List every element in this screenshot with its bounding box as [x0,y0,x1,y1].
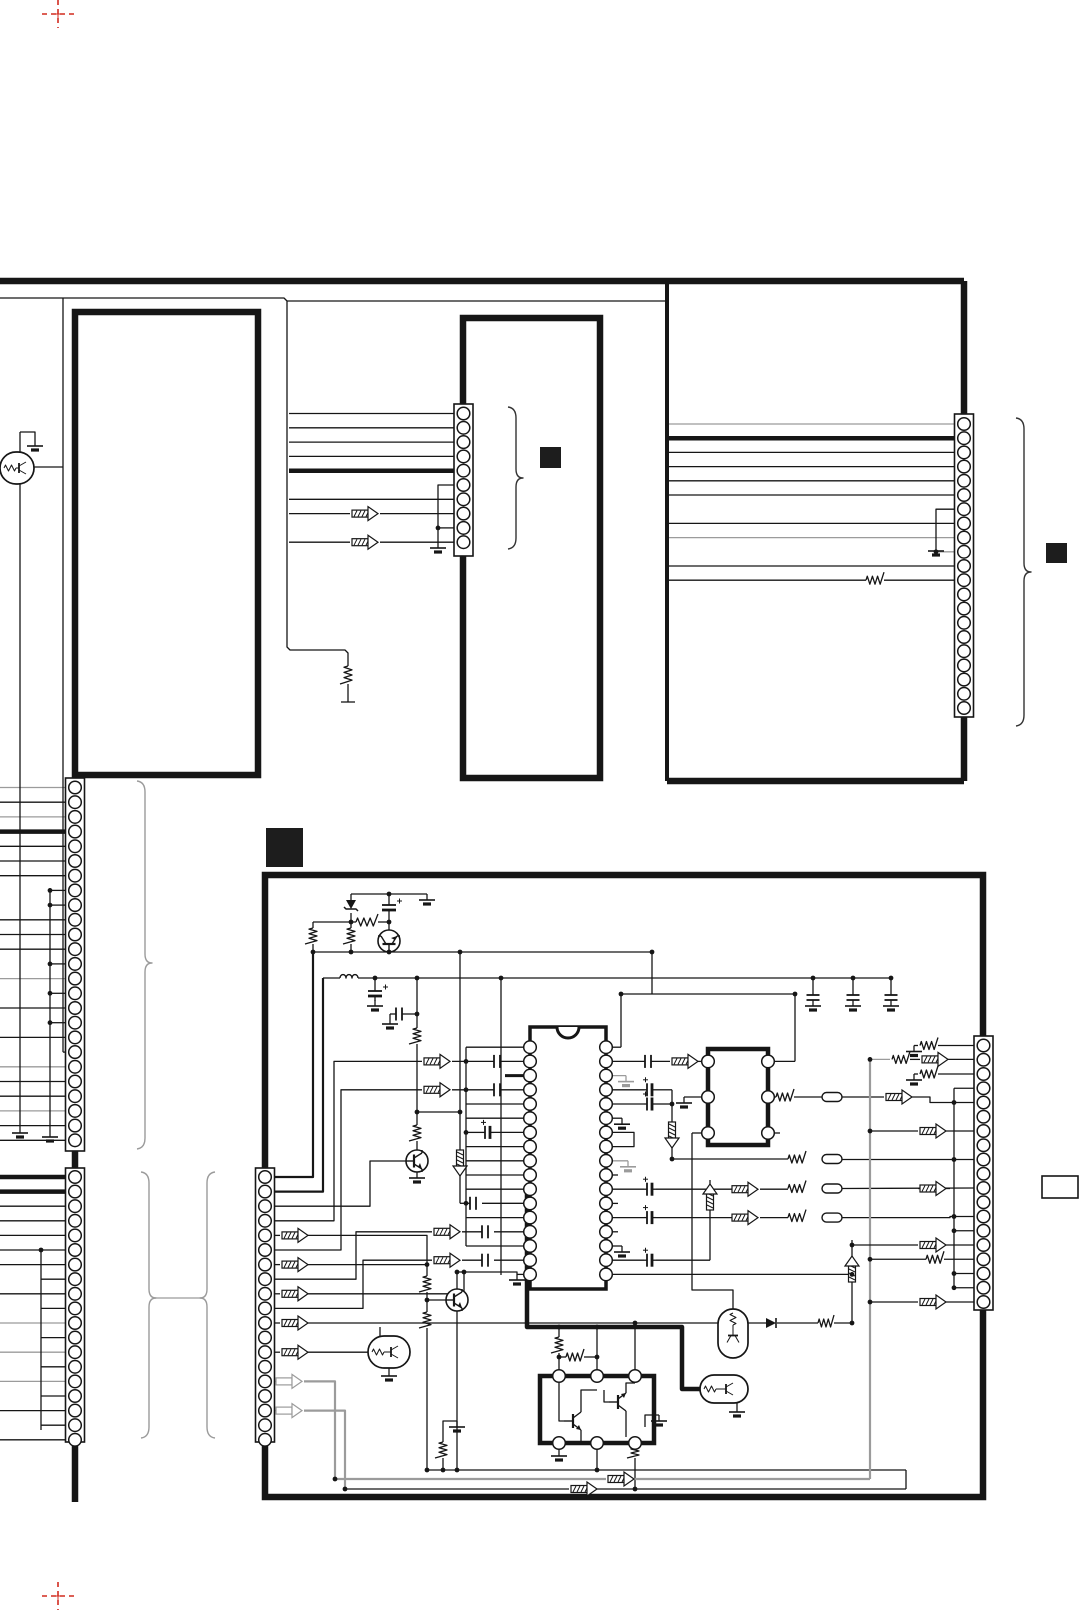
connector-pin [69,1031,82,1044]
signal-flow-arrow-icon [276,1378,292,1385]
signal-flow-arrow-icon [748,1211,758,1225]
module-pin [629,1370,642,1383]
ic-pin [524,1211,537,1224]
signal-flow-arrow-icon [298,1228,308,1242]
junction-dot [48,1020,53,1025]
connector-pin [259,1288,272,1301]
connector-pin [958,688,971,701]
junction-dot [670,1102,675,1107]
connector-pin [457,436,470,449]
signal-flow-arrow-icon [282,1287,308,1301]
signal-flow-arrow-icon [902,1090,912,1104]
connector-pin [977,1267,990,1280]
connector-pin [259,1331,272,1344]
junction-dot [850,1243,855,1248]
module-pin [553,1370,566,1383]
junction-dot [343,1487,348,1492]
ic-pin [600,1155,613,1168]
transistor-symbol [573,1412,581,1418]
connector-pin [69,1375,82,1388]
ic-pin [524,1055,537,1068]
connector-pin [69,1046,82,1059]
ic-pin [600,1254,613,1267]
connector-pin [259,1346,272,1359]
connector-pin [259,1317,272,1330]
module-pin [762,1127,775,1140]
signal-flow-arrow-icon [276,1407,292,1414]
signal-flow-arrow-icon [282,1258,308,1272]
connector-pin [958,475,971,488]
connector-pin [958,446,971,459]
junction-dot [595,1468,600,1473]
resistor-symbol [776,1089,794,1101]
signal-flow-arrow-icon [624,1472,634,1486]
resistor-symbol [818,1315,834,1327]
connector-pin [259,1185,272,1198]
connector-pin [457,407,470,420]
signal-flow-arrow-icon [276,1404,302,1418]
junction-dot [462,1270,467,1275]
transistor-symbol [406,1150,428,1172]
resistor-symbol [892,1051,910,1063]
signal-flow-arrow-icon [936,1124,946,1138]
connector-pin [457,422,470,435]
connector-pin [958,702,971,715]
ic-pin [524,1183,537,1196]
connector-pin [69,825,82,838]
connector-pin [69,928,82,941]
signal-flow-arrow-icon [352,535,378,549]
junction-dot [311,950,316,955]
wire [275,978,324,1192]
signal-flow-arrow-icon [440,1083,450,1097]
ic-pin [600,1084,613,1097]
signal-flow-arrow-icon [292,1374,302,1388]
transistor-array-symbol [540,1376,654,1443]
connector-pin [977,1153,990,1166]
connector-pin [958,503,971,516]
connector-pin [259,1244,272,1257]
junction-dot [464,1130,469,1135]
resistor-symbol [356,914,378,926]
junction-dot [952,1157,957,1162]
connector-pin [69,1171,82,1184]
connector-pin [259,1215,272,1228]
signal-flow-arrow-icon [434,1225,460,1239]
resistor-symbol [566,1349,584,1361]
signal-flow-arrow-icon [845,1256,859,1282]
connector-pin [977,1182,990,1195]
connector-pin [977,1039,990,1052]
signal-flow-arrow-icon [298,1258,308,1272]
junction-dot [441,1468,446,1473]
junction-dot [349,920,354,925]
signal-flow-arrow-icon [886,1090,912,1104]
signal-flow-arrow-icon [453,1150,467,1176]
junction-dot [952,1285,957,1290]
junction-dot [952,1228,957,1233]
connector-pin [958,546,971,559]
connector-pin [958,489,971,502]
wire [275,1061,423,1220]
junction-dot [425,1468,430,1473]
resistor-symbol [305,928,317,944]
connector-pin [69,914,82,927]
signal-flow-arrow-icon [298,1345,308,1359]
cable-bundle-brace [137,781,152,1149]
junction-dot [952,1100,957,1105]
signal-flow-arrow-icon [298,1316,308,1330]
connector-pin [958,531,971,544]
wire [936,509,956,545]
connector-pin [977,1167,990,1180]
connector-pin [69,1090,82,1103]
connector-pin [69,1215,82,1228]
ic-pin [524,1041,537,1054]
signal-flow-arrow-icon [450,1253,460,1267]
wire [912,1097,974,1103]
signal-flow-arrow-icon [732,1182,758,1196]
ic-symbol [530,1027,606,1289]
signal-flow-arrow-icon [920,1295,946,1309]
ic-pin [524,1112,537,1125]
resistor-symbol [920,1066,938,1078]
connector-pin [259,1375,272,1388]
resistor-symbol [419,1276,431,1292]
ic-pin [600,1055,613,1068]
ic-pin [524,1084,537,1097]
connector-pin [977,1196,990,1209]
ic-pin [524,1098,537,1111]
junction-dot [793,992,798,997]
connector-pin [457,479,470,492]
signal-flow-arrow-icon [688,1054,698,1068]
junction-dot [595,1355,600,1360]
connector-pin [69,1016,82,1029]
connector-pin [259,1434,272,1447]
connector-pin [958,588,971,601]
wire [304,1411,345,1489]
ferrite-bead-symbol [822,1213,842,1222]
wire [304,1381,335,1479]
connector-pin [958,560,971,573]
ic-pin [524,1197,537,1210]
ic-pin [524,1169,537,1182]
junction-dot [373,976,378,981]
connector-pin [457,522,470,535]
connector-pin [69,855,82,868]
junction-dot [464,1087,469,1092]
circuit-block-outline [75,312,258,775]
transistor-symbol [446,1289,468,1311]
junction-dot [868,1257,873,1262]
signal-flow-arrow-icon [424,1083,450,1097]
connector-pin [958,517,971,530]
junction-dot [595,1325,600,1330]
connector-pin [958,659,971,672]
schematic-canvas [0,0,1079,1610]
resistor-symbol [866,572,884,584]
wire [275,1161,407,1206]
signal-flow-arrow-icon [920,1124,946,1138]
junction-dot [436,526,441,531]
wire [581,1390,597,1412]
junction-dot [633,1321,638,1326]
connector-pin [457,507,470,520]
ferrite-bead-symbol [822,1093,842,1102]
ic-symbol [557,1027,579,1038]
junction-dot [48,962,53,967]
resistor-symbol [788,1151,806,1163]
resistor-symbol [409,1125,421,1141]
connector-pin [69,899,82,912]
transistor-symbol [618,1405,626,1411]
signal-flow-arrow-icon [672,1054,698,1068]
junction-dot [868,1129,873,1134]
wire [20,432,35,440]
connector-pin [977,1139,990,1152]
junction-dot [851,976,856,981]
signal-flow-arrow-icon [922,1052,948,1066]
signal-flow-arrow-icon [298,1287,308,1301]
ic-pin [600,1041,613,1054]
ferrite-bead-symbol [822,1155,842,1164]
connector-pin [958,432,971,445]
signal-flow-arrow-icon [936,1295,946,1309]
signal-flow-arrow-icon [368,535,378,549]
ic-pin [524,1069,537,1082]
junction-dot [458,1110,463,1115]
ic-pin [524,1240,537,1253]
junction-dot [387,950,392,955]
ic-pin [600,1112,613,1125]
signal-flow-arrow-icon [352,507,378,521]
junction-dot [670,1157,675,1162]
cable-bundle-brace [200,1172,215,1438]
wire [626,1383,635,1393]
signal-flow-arrow-icon [920,1238,946,1252]
junction-dot [850,1321,855,1326]
signal-flow-arrow-icon [276,1374,302,1388]
resistor-symbol [419,1312,431,1328]
connector-pin [69,1331,82,1344]
connector-pin [69,1404,82,1417]
signal-flow-arrow-icon [434,1253,460,1267]
connector-pin [958,631,971,644]
module-pin [762,1055,775,1068]
connector-pin [69,796,82,809]
cable-bundle-brace [1016,418,1031,726]
ic-pin [600,1183,613,1196]
cable-bundle-brace [141,1172,156,1438]
signal-flow-arrow-icon [665,1138,679,1148]
junction-dot [39,1248,44,1253]
connector-pin [259,1229,272,1242]
connector-pin [69,1419,82,1432]
connector-pin [69,1390,82,1403]
junction-dot [387,920,392,925]
module-pin [553,1437,566,1450]
black-square-marker [1046,543,1067,563]
ic-pin [600,1197,613,1210]
connector-pin [69,943,82,956]
junction-dot [499,976,504,981]
signal-flow-arrow-icon [440,1054,450,1068]
junction-dot [425,1298,430,1303]
wire [275,952,314,1177]
connector-pin [259,1419,272,1432]
module-pin [762,1091,775,1104]
junction-dot [48,991,53,996]
connector-pin [457,450,470,463]
signal-flow-arrow-icon [282,1345,308,1359]
wire [308,1272,464,1294]
connector-pin [69,1346,82,1359]
connector-pin [977,1210,990,1223]
connector-pin [69,869,82,882]
wire [559,1383,564,1421]
signal-flow-arrow-icon [450,1225,460,1239]
connector-pin [958,673,971,686]
junction-dot [464,1059,469,1064]
module-pin [702,1055,715,1068]
junction-dot [952,1271,957,1276]
module-pin [591,1437,604,1450]
connector-pin [69,1361,82,1374]
connector-pin [69,1244,82,1257]
connector-pin [958,617,971,630]
connector-pin [259,1361,272,1374]
junction-dot [455,1270,460,1275]
connector-pin [69,1075,82,1088]
connector-pin [259,1171,272,1184]
black-square-marker [266,828,303,867]
connector-pin [457,464,470,477]
module-pin [629,1437,642,1450]
junction-dot [48,888,53,893]
connector-pin [977,1110,990,1123]
wire [0,298,348,666]
connector-pin [259,1404,272,1417]
connector-pin [69,811,82,824]
junction-dot [934,549,939,554]
connector-pin [977,1125,990,1138]
junction-dot [557,1325,562,1330]
connector-pin [977,1096,990,1109]
junction-dot [464,1201,469,1206]
ic-pin [600,1069,613,1082]
signal-flow-arrow-icon [748,1182,758,1196]
connector-pin [69,840,82,853]
signal-flow-arrow-icon [282,1316,308,1330]
junction-dot [425,1262,430,1267]
signal-flow-arrow-icon [292,1404,302,1418]
junction-dot [868,1057,873,1062]
connector-pin [69,1119,82,1132]
junction-dot [455,1468,460,1473]
connector-pin [977,1296,990,1309]
connector-pin [69,1105,82,1118]
connector-pin [977,1053,990,1066]
resistor-symbol [409,1028,421,1044]
resistor-symbol [343,928,355,944]
junction-dot [387,892,392,897]
ic-pin [600,1211,613,1224]
cable-bundle-brace [508,407,523,549]
empty-label-box [1042,1176,1078,1198]
junction-dot [633,1487,638,1492]
junction-dot [650,950,655,955]
wire [604,1390,609,1402]
ic-pin [600,1140,613,1153]
connector-pin [259,1258,272,1271]
signal-flow-arrow-icon [453,1166,467,1176]
connector-pin [958,602,971,615]
connector-pin [69,781,82,794]
signal-flow-arrow-icon [936,1238,946,1252]
connector-pin [977,1082,990,1095]
connector-pin [977,1224,990,1237]
signal-flow-arrow-icon [845,1256,859,1266]
connector-pin [69,1288,82,1301]
signal-flow-arrow-icon [282,1228,308,1242]
resistor-symbol [340,666,352,684]
connector-pin [69,972,82,985]
signal-flow-arrow-icon [703,1184,717,1210]
signal-flow-arrow-icon [920,1182,946,1196]
signal-flow-arrow-icon [938,1052,948,1066]
ic-pin [524,1226,537,1239]
connector-pin [977,1068,990,1081]
junction-dot [415,976,420,981]
ic-pin [524,1140,537,1153]
signal-flow-arrow-icon [732,1211,758,1225]
resistor-symbol [788,1181,806,1193]
signal-flow-arrow-icon [368,507,378,521]
module-pin [591,1370,604,1383]
connector-pin [259,1200,272,1213]
resistor-symbol [435,1442,447,1458]
connector-pin [69,1002,82,1015]
connector-pin [69,1302,82,1315]
connector-pin [69,1185,82,1198]
junction-dot [458,950,463,955]
junction-dot [868,1300,873,1305]
resistor-symbol [788,1210,806,1222]
connector-pin [69,1273,82,1286]
zener-diode-symbol [346,900,356,909]
connector-pin [457,536,470,549]
connector-pin [457,493,470,506]
inductor-symbol [340,975,358,978]
connector-pin [259,1273,272,1286]
connector-pin [69,1258,82,1271]
junction-dot [811,976,816,981]
connector-pin [69,1434,82,1447]
ferrite-bead-symbol [822,1184,842,1193]
resistor-symbol [926,1251,944,1263]
junction-dot [619,992,624,997]
connector-pin [259,1302,272,1315]
ic-pin [600,1169,613,1182]
ic-pin [524,1126,537,1139]
junction-dot [952,1214,957,1219]
connector-pin [69,1061,82,1074]
ic-pin [600,1126,613,1139]
transistor-symbol [378,930,400,952]
connector-pin [977,1253,990,1266]
signal-flow-arrow-icon [936,1182,946,1196]
